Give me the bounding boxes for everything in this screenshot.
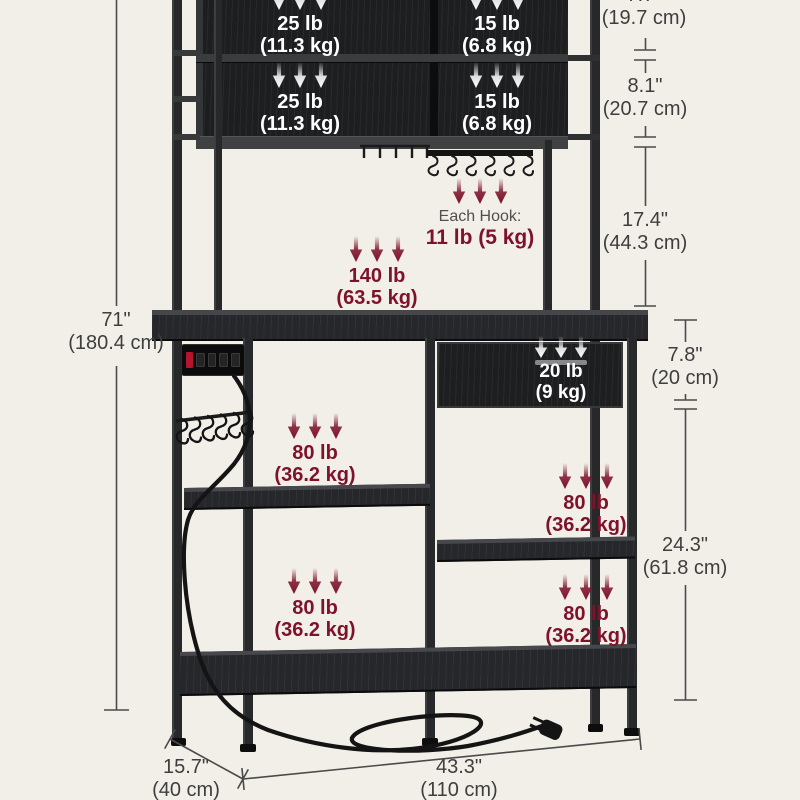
capacity-hutch-top-right: 15 lb (6.8 kg)	[427, 0, 567, 57]
down-arrows-icon	[410, 178, 550, 204]
shelf-middle-right	[437, 537, 635, 562]
shelf-middle-left	[184, 484, 430, 510]
dimension-width: 43.3" (110 cm)	[384, 756, 534, 800]
down-arrows-icon	[307, 236, 447, 262]
capacity-hutch-bottom-right: 15 lb (6.8 kg)	[427, 62, 567, 135]
outlet-icon	[208, 353, 217, 367]
hutch-bottom-band	[196, 136, 568, 149]
capacity-shelf-mid-left: 80 lb (36.2 kg)	[245, 413, 385, 486]
side-bar-right	[568, 55, 600, 61]
down-arrows-icon	[245, 413, 385, 439]
product-dimension-diagram: 25 lb (11.3 kg) 15 lb (6.8 kg) 25 lb (11…	[0, 0, 800, 800]
foot	[588, 724, 603, 732]
capacity-hutch-top-left: 25 lb (11.3 kg)	[230, 0, 370, 57]
foot	[624, 728, 640, 736]
capacity-shelf-bottom-left: 80 lb (36.2 kg)	[245, 568, 385, 641]
outlet-icon	[231, 353, 240, 367]
outlet-icon	[196, 353, 205, 367]
side-bar-right	[568, 134, 600, 140]
side-ledge	[174, 134, 200, 140]
capacity-hutch-bottom-left: 25 lb (11.3 kg)	[230, 62, 370, 135]
capacity-shelf-mid-right: 80 lb (36.2 kg)	[516, 463, 656, 536]
capacity-countertop: 140 lb (63.5 kg)	[307, 236, 447, 309]
shelf-bottom	[180, 644, 636, 696]
frame-post-front-left-upper	[214, 0, 222, 318]
dimension-lower-clearance: 24.3" (61.8 cm)	[610, 534, 760, 580]
dimension-hutch-clearance: 17.4" (44.3 cm)	[570, 209, 720, 255]
hutch-left-edge	[196, 0, 203, 148]
down-arrows-icon	[230, 0, 370, 10]
side-ledge	[174, 96, 200, 102]
foot	[171, 738, 186, 746]
dimension-top-shelf: 7.7" (19.7 cm)	[569, 0, 719, 30]
outlet-icon	[219, 353, 228, 367]
dimension-drawer-height: 7.8" (20 cm)	[610, 344, 760, 390]
foot	[240, 744, 256, 752]
down-arrows-icon	[230, 62, 370, 88]
down-arrows-icon	[427, 0, 567, 10]
side-ledge	[174, 50, 200, 56]
down-arrows-icon	[516, 463, 656, 489]
dimension-middle-shelf: 8.1" (20.7 cm)	[570, 75, 720, 121]
down-arrows-icon	[427, 62, 567, 88]
down-arrows-icon	[245, 568, 385, 594]
dimension-depth: 15.7" (40 cm)	[111, 756, 261, 800]
dimension-overall-height: 71" (180.4 cm)	[41, 309, 191, 355]
capacity-shelf-bottom-right: 80 lb (36.2 kg)	[516, 574, 656, 647]
foot	[422, 738, 438, 746]
